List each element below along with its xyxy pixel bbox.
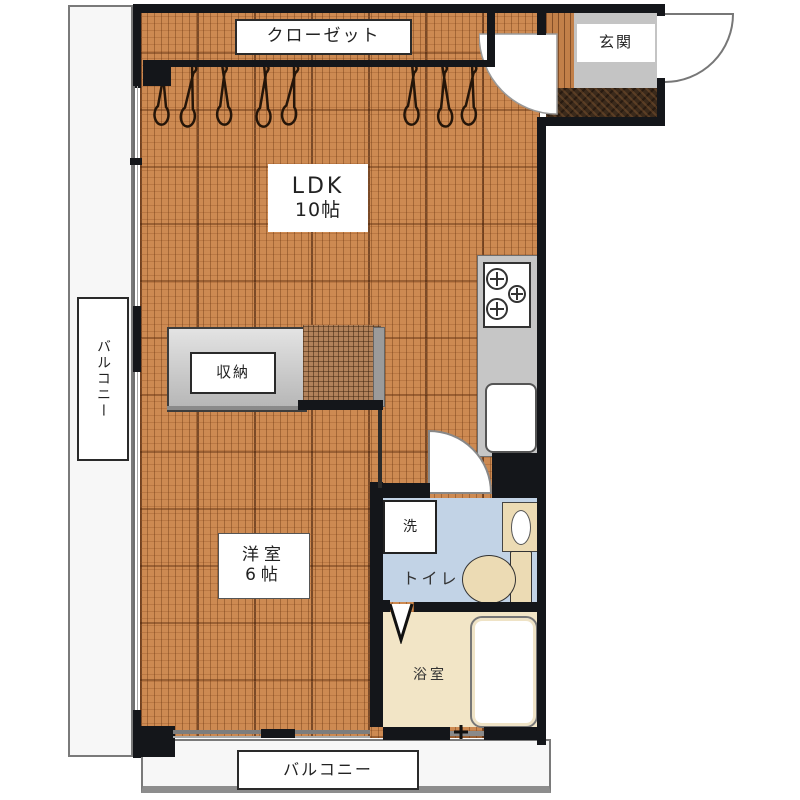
- hanger-icons-left: [148, 62, 316, 142]
- closet-label: クローゼット: [235, 19, 412, 55]
- wall-closet-divider: [487, 4, 495, 67]
- washroom-door-swing-icon: [426, 430, 496, 496]
- wall-bath-divider-right: [414, 602, 537, 612]
- toilet-label: トイレ: [388, 564, 474, 590]
- folding-door-icon: [388, 602, 416, 644]
- wall-washroom-top-right: [492, 453, 537, 498]
- wall-top: [133, 4, 665, 13]
- wall-corner-bottom-left: [133, 726, 175, 757]
- basin-bowl: [511, 510, 531, 545]
- window-tick: [130, 158, 142, 165]
- wall-left-mid: [133, 306, 141, 372]
- window-left-lower-inner: [137, 372, 138, 712]
- floor-plan: バルコニー バルコニー 収納 洗 トイレ 浴室 玄関: [0, 0, 800, 800]
- storage-label: 収納: [190, 352, 276, 394]
- wall-washroom-top-left: [383, 483, 430, 498]
- wall-bath-bottom-right: [484, 727, 537, 740]
- hanger-icons-right: [398, 62, 498, 142]
- wash-basin-icon: [502, 502, 538, 552]
- stove-burners-icon: [483, 262, 531, 328]
- window-left-lower: [133, 372, 135, 712]
- window-left-upper-inner: [137, 86, 138, 308]
- wall-entrance-bottom: [537, 117, 665, 126]
- balcony-left-label: バルコニー: [77, 297, 129, 461]
- western-room-size: 6帖: [245, 566, 283, 586]
- washing-machine: 洗: [383, 500, 437, 554]
- ldk-label: LDK 10帖: [268, 164, 368, 232]
- wall-westernroom-corridor: [378, 408, 382, 488]
- wall-entrance-right-top: [657, 4, 665, 16]
- entrance-tataki-floor: [546, 88, 657, 117]
- ldk-name: LDK: [292, 174, 345, 199]
- entrance-door-swing-icon: [663, 8, 737, 86]
- entrance-label: 玄関: [577, 24, 655, 62]
- wall-left-top: [133, 4, 141, 88]
- storage-track-line: [167, 406, 303, 410]
- wall-closet-end: [143, 60, 171, 86]
- wall-storage-bottom: [298, 400, 383, 410]
- bathtub-icon: [470, 616, 538, 728]
- wall-bath-divider-left: [370, 600, 390, 612]
- balcony-bottom-label: バルコニー: [237, 750, 419, 790]
- storage-sliding-door: [373, 327, 385, 407]
- ldk-size: 10帖: [295, 200, 341, 222]
- westernroom-window-tick: [261, 729, 295, 738]
- bathroom-label: 浴室: [394, 662, 466, 686]
- wall-right-main: [537, 117, 546, 745]
- wall-closet-front: [143, 60, 491, 67]
- western-room-name: 洋室: [242, 546, 286, 566]
- window-left-upper: [133, 86, 135, 308]
- storage-hatch-area: [303, 325, 381, 407]
- western-room-label: 洋室 6帖: [218, 533, 310, 599]
- wall-entrance-doorjamb: [537, 13, 546, 35]
- vent-cross-icon: [452, 723, 470, 741]
- wall-bath-bottom-left: [383, 727, 450, 740]
